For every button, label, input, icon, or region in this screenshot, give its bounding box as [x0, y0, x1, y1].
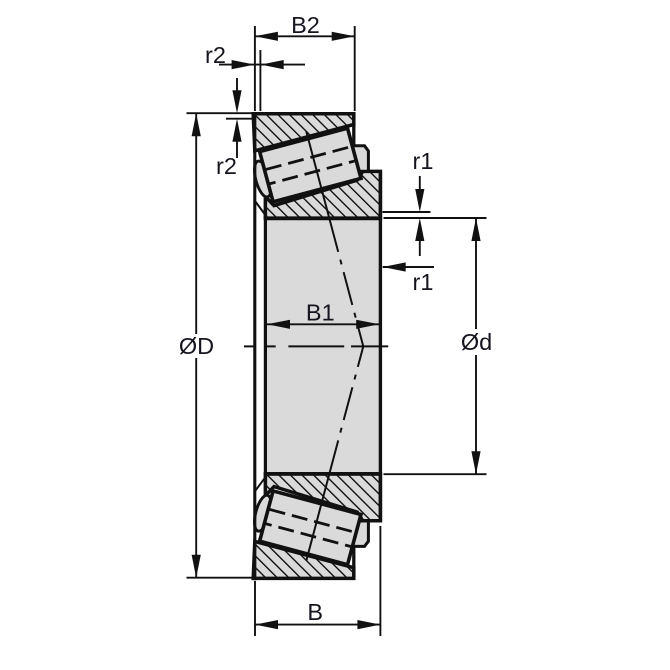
svg-text:B1: B1 — [306, 300, 335, 326]
svg-text:B2: B2 — [291, 12, 320, 38]
svg-text:r1: r1 — [413, 269, 434, 295]
svg-text:B: B — [307, 599, 323, 625]
svg-text:r1: r1 — [413, 148, 434, 174]
svg-text:r2: r2 — [216, 153, 237, 179]
svg-text:ØD: ØD — [179, 333, 214, 359]
svg-text:r2: r2 — [205, 42, 226, 68]
svg-text:Ød: Ød — [461, 329, 492, 355]
